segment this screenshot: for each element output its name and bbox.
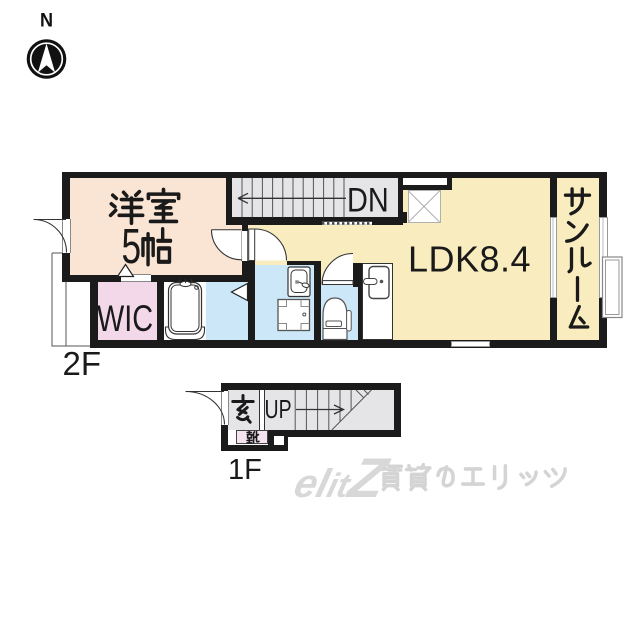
svg-text:DN: DN xyxy=(347,180,389,219)
svg-text:LDK8.4: LDK8.4 xyxy=(408,239,531,280)
svg-text:WIC: WIC xyxy=(97,299,153,340)
svg-text:elitZ: elitZ xyxy=(289,448,395,510)
svg-text:UP: UP xyxy=(265,394,292,423)
svg-text:2F: 2F xyxy=(63,345,102,382)
svg-text:1F: 1F xyxy=(228,454,262,486)
svg-text:5: 5 xyxy=(122,219,142,274)
svg-text:N: N xyxy=(40,9,53,31)
